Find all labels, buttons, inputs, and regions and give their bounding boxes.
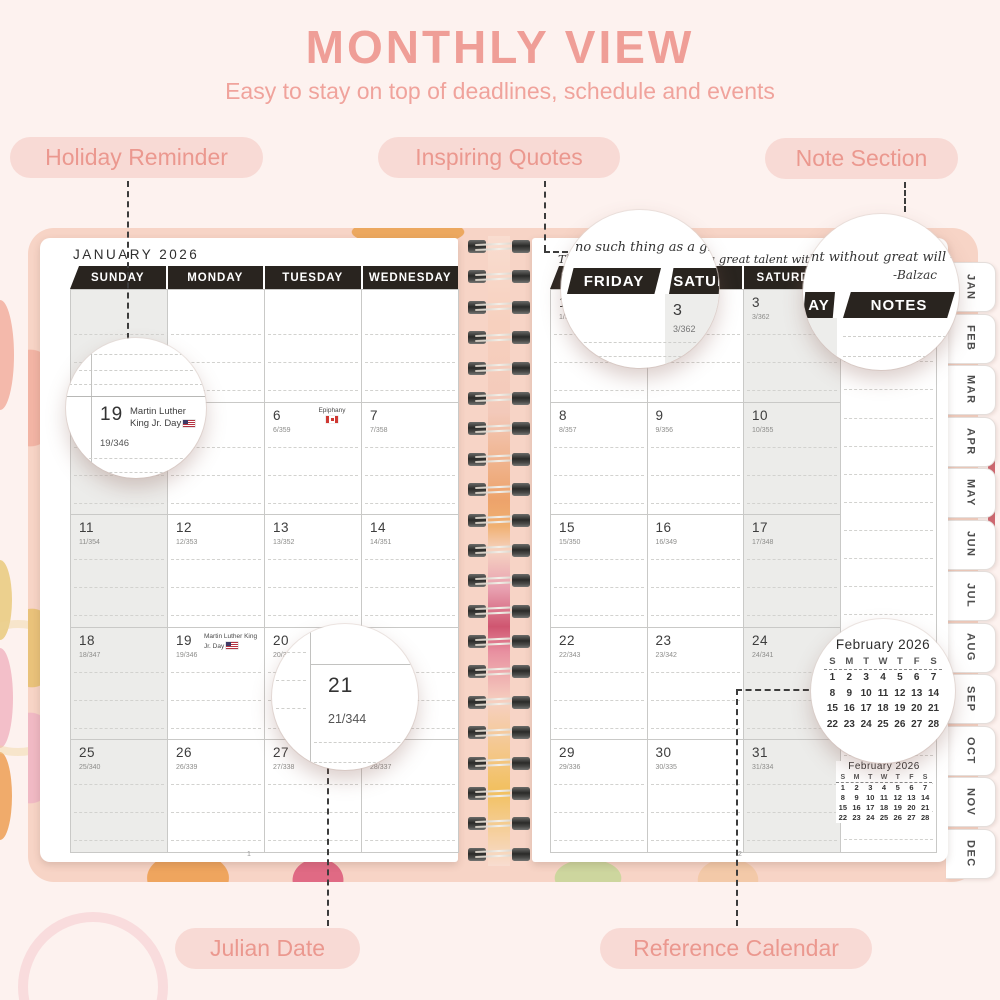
note-line bbox=[74, 700, 164, 701]
mini-date: 7 bbox=[925, 670, 942, 686]
mini-date: 2 bbox=[841, 670, 858, 686]
callout-holiday-reminder: Holiday Reminder bbox=[10, 137, 263, 178]
holiday-label-text: Martin Luther King Jr. Day bbox=[130, 406, 186, 429]
spiral-ring bbox=[468, 696, 530, 710]
note-line bbox=[268, 559, 358, 560]
note-line bbox=[651, 587, 741, 588]
page-title: MONTHLY VIEW bbox=[0, 20, 1000, 74]
magnified-julian-date: 21/344 bbox=[328, 712, 366, 726]
note-line bbox=[554, 784, 644, 785]
note-line bbox=[268, 503, 358, 504]
julian-date: 19/346 bbox=[176, 652, 197, 659]
mini-date: 2 bbox=[850, 783, 864, 793]
calendar-cell: 3030/335 bbox=[648, 739, 745, 852]
spiral-ring bbox=[468, 453, 530, 467]
note-line bbox=[268, 390, 358, 391]
spiral-ring bbox=[468, 605, 530, 619]
connector-line bbox=[544, 181, 546, 251]
note-line bbox=[564, 342, 716, 343]
us-flag-icon bbox=[183, 420, 195, 427]
connector-line bbox=[127, 181, 129, 339]
mini-date: 8 bbox=[836, 793, 850, 803]
month-tab-jul: JUL bbox=[946, 571, 996, 621]
month-tab-aug: AUG bbox=[946, 623, 996, 673]
note-line bbox=[554, 475, 644, 476]
spiral-ring bbox=[468, 301, 530, 315]
connector-line bbox=[904, 182, 906, 212]
day-header-chip: SATUR bbox=[669, 268, 719, 294]
mini-date: 22 bbox=[824, 717, 841, 733]
note-line bbox=[554, 672, 644, 673]
mini-date: 23 bbox=[841, 717, 858, 733]
note-line bbox=[843, 336, 956, 337]
spiral-ring bbox=[468, 757, 530, 771]
mini-date: 4 bbox=[877, 783, 891, 793]
calendar-cell bbox=[841, 514, 938, 627]
note-line bbox=[74, 812, 164, 813]
mini-day-letter: T bbox=[891, 774, 905, 781]
month-tab-label: FEB bbox=[965, 325, 977, 352]
product-infographic: MONTHLY VIEW Easy to stay on top of dead… bbox=[0, 0, 1000, 1000]
mini-calendar-week: 15161718192021 bbox=[836, 803, 932, 813]
julian-date: 17/348 bbox=[752, 539, 773, 546]
mini-day-letter: F bbox=[905, 774, 919, 781]
note-line bbox=[171, 728, 261, 729]
date-number: 13 bbox=[273, 520, 289, 535]
calendar-cell: 1818/347 bbox=[71, 627, 168, 740]
julian-date: 26/339 bbox=[176, 764, 197, 771]
mini-date: 7 bbox=[918, 783, 932, 793]
mini-date: 18 bbox=[877, 803, 891, 813]
mini-date: 17 bbox=[863, 803, 877, 813]
note-line bbox=[171, 812, 261, 813]
mini-day-letter: T bbox=[891, 656, 908, 667]
date-number: 16 bbox=[656, 520, 672, 535]
mini-calendar-week: 15161718192021 bbox=[824, 701, 942, 717]
month-tab-label: JAN bbox=[965, 274, 977, 301]
calendar-cell bbox=[362, 289, 459, 402]
mini-day-letter: T bbox=[863, 774, 877, 781]
note-line bbox=[365, 784, 455, 785]
mini-date: 23 bbox=[850, 813, 864, 823]
calendar-cell: 1616/349 bbox=[648, 514, 745, 627]
mini-date: 28 bbox=[918, 813, 932, 823]
page-number: 1 bbox=[40, 851, 458, 858]
page-subtitle: Easy to stay on top of deadlines, schedu… bbox=[0, 78, 1000, 105]
month-tab-jun: JUN bbox=[946, 520, 996, 570]
note-line bbox=[747, 503, 837, 504]
date-number: 27 bbox=[273, 745, 289, 760]
calendar-cell: 2929/336 bbox=[551, 739, 648, 852]
date-number: 3 bbox=[752, 295, 760, 310]
note-line bbox=[171, 587, 261, 588]
note-line bbox=[651, 812, 741, 813]
mini-date: 13 bbox=[905, 793, 919, 803]
julian-date: 11/354 bbox=[79, 539, 100, 546]
date-number: 17 bbox=[752, 520, 768, 535]
note-line bbox=[268, 587, 358, 588]
spiral-ring bbox=[468, 726, 530, 740]
mini-day-letter: W bbox=[877, 774, 891, 781]
spiral-ring bbox=[468, 331, 530, 345]
month-tab-may: MAY bbox=[946, 468, 996, 518]
month-tab-label: MAR bbox=[965, 375, 977, 405]
magnifier-inspiring-quote: no such thing as a great talent w FRIDAY… bbox=[561, 210, 719, 368]
note-line bbox=[651, 728, 741, 729]
note-line bbox=[651, 784, 741, 785]
mini-date: 10 bbox=[863, 793, 877, 803]
date-number: 20 bbox=[273, 633, 289, 648]
mini-day-letter: S bbox=[824, 656, 841, 667]
note-line bbox=[268, 615, 358, 616]
date-number: 7 bbox=[370, 408, 378, 423]
julian-date: 27/338 bbox=[273, 764, 294, 771]
mini-date: 25 bbox=[875, 717, 892, 733]
spiral-ring bbox=[468, 362, 530, 376]
mini-date: 22 bbox=[836, 813, 850, 823]
mini-calendar-week: 22232425262728 bbox=[824, 717, 942, 733]
spiral-ring bbox=[468, 392, 530, 406]
magnified-date: 19 bbox=[100, 404, 123, 426]
note-line bbox=[747, 390, 837, 391]
mini-date: 19 bbox=[891, 803, 905, 813]
note-line bbox=[747, 475, 837, 476]
cover-art-blob bbox=[0, 300, 14, 410]
julian-date: 23/342 bbox=[656, 652, 677, 659]
spiral-ring bbox=[468, 787, 530, 801]
date-number: 29 bbox=[559, 745, 575, 760]
grid-line bbox=[310, 664, 418, 665]
date-number: 30 bbox=[656, 745, 672, 760]
calendar-cell: 1414/351 bbox=[362, 514, 459, 627]
magnifier-julian-date: 21 21/344 bbox=[272, 624, 418, 770]
month-tab-dec: DEC bbox=[946, 829, 996, 879]
note-line bbox=[74, 503, 164, 504]
note-line bbox=[651, 447, 741, 448]
note-line bbox=[365, 587, 455, 588]
date-number: 19 bbox=[176, 633, 192, 648]
note-line bbox=[314, 742, 415, 743]
spiral-ring bbox=[468, 635, 530, 649]
month-tab-oct: OCT bbox=[946, 726, 996, 776]
date-number: 11 bbox=[79, 520, 94, 535]
note-line bbox=[747, 447, 837, 448]
mini-date: 9 bbox=[841, 686, 858, 702]
date-number: 26 bbox=[176, 745, 192, 760]
day-header: TUESDAY bbox=[265, 266, 361, 289]
mini-calendar-title: February 2026 bbox=[824, 637, 942, 652]
note-line bbox=[69, 458, 203, 459]
spiral-ring bbox=[468, 514, 530, 528]
shaded-column-patch bbox=[803, 318, 837, 370]
note-line bbox=[171, 615, 261, 616]
note-line bbox=[554, 503, 644, 504]
calendar-cell: 2525/340 bbox=[71, 739, 168, 852]
note-line bbox=[69, 354, 203, 355]
note-line bbox=[554, 812, 644, 813]
note-line bbox=[74, 672, 164, 673]
mini-date: 3 bbox=[858, 670, 875, 686]
date-number: 6 bbox=[273, 408, 281, 423]
note-line bbox=[74, 840, 164, 841]
notes-header-chip: NOTES bbox=[843, 292, 955, 318]
mini-date: 6 bbox=[905, 783, 919, 793]
mini-date: 15 bbox=[824, 701, 841, 717]
note-line bbox=[651, 475, 741, 476]
mini-date: 25 bbox=[877, 813, 891, 823]
mini-calendar-week: 891011121314 bbox=[824, 686, 942, 702]
note-line bbox=[171, 700, 261, 701]
julian-date: 13/352 bbox=[273, 539, 294, 546]
note-line bbox=[276, 680, 306, 681]
calendar-cell: 1717/348 bbox=[744, 514, 841, 627]
mini-date: 14 bbox=[925, 686, 942, 702]
julian-date: 15/350 bbox=[559, 539, 580, 546]
note-line bbox=[74, 728, 164, 729]
spiral-ring bbox=[468, 240, 530, 254]
calendar-cell bbox=[841, 402, 938, 515]
mini-day-letter: F bbox=[908, 656, 925, 667]
us-flag-icon bbox=[226, 642, 238, 649]
julian-date: 9/356 bbox=[656, 427, 674, 434]
mini-day-letter: M bbox=[850, 774, 864, 781]
note-line bbox=[747, 587, 837, 588]
mini-date: 18 bbox=[875, 701, 892, 717]
holiday-event: Martin Luther King Jr. Day bbox=[204, 633, 263, 652]
date-number: 9 bbox=[656, 408, 664, 423]
note-line bbox=[554, 390, 644, 391]
date-number: 15 bbox=[559, 520, 575, 535]
mini-day-letter: W bbox=[875, 656, 892, 667]
mini-date: 26 bbox=[891, 813, 905, 823]
callout-inspiring-quotes: Inspiring Quotes bbox=[378, 137, 620, 178]
calendar-cell: 66/359Epiphany bbox=[265, 402, 362, 515]
mini-calendar-week: 891011121314 bbox=[836, 793, 932, 803]
mini-date: 20 bbox=[905, 803, 919, 813]
julian-date: 29/336 bbox=[559, 764, 580, 771]
month-title: JANUARY 2026 bbox=[73, 247, 199, 262]
spiral-ring bbox=[468, 848, 530, 862]
calendar-cell: 1010/355 bbox=[744, 402, 841, 515]
note-line bbox=[747, 840, 837, 841]
note-line bbox=[844, 586, 934, 587]
note-line bbox=[171, 334, 261, 335]
mini-calendar-week: 1234567 bbox=[836, 783, 932, 793]
mini-date: 3 bbox=[863, 783, 877, 793]
date-number: 31 bbox=[752, 745, 768, 760]
date-number: 25 bbox=[79, 745, 95, 760]
note-line bbox=[843, 356, 956, 357]
magnified-quote-text: nt without great will - power." bbox=[811, 250, 959, 265]
note-line bbox=[171, 559, 261, 560]
note-line bbox=[651, 503, 741, 504]
note-line bbox=[69, 384, 203, 385]
note-line bbox=[365, 334, 455, 335]
note-line bbox=[554, 700, 644, 701]
note-line bbox=[651, 390, 741, 391]
note-line bbox=[268, 784, 358, 785]
date-number: 12 bbox=[176, 520, 192, 535]
note-line bbox=[314, 762, 415, 763]
note-line bbox=[844, 418, 934, 419]
grid-line bbox=[91, 338, 92, 478]
spiral-ring bbox=[468, 544, 530, 558]
date-number: 24 bbox=[752, 633, 768, 648]
note-line bbox=[747, 784, 837, 785]
julian-date: 16/349 bbox=[656, 539, 677, 546]
mini-date: 6 bbox=[908, 670, 925, 686]
date-number: 23 bbox=[656, 633, 672, 648]
mini-calendar-day-letters: SMTWTFS bbox=[836, 774, 932, 783]
note-line bbox=[651, 700, 741, 701]
mini-date: 27 bbox=[905, 813, 919, 823]
note-line bbox=[74, 334, 164, 335]
mini-date: 21 bbox=[925, 701, 942, 717]
mini-date: 8 bbox=[824, 686, 841, 702]
holiday-event: Epiphany bbox=[309, 407, 355, 424]
left-page: JANUARY 2026 SUNDAYMONDAYTUESDAYWEDNESDA… bbox=[40, 238, 458, 862]
note-line bbox=[276, 708, 306, 709]
mini-date: 1 bbox=[824, 670, 841, 686]
note-line bbox=[268, 362, 358, 363]
note-line bbox=[554, 587, 644, 588]
mini-day-letter: T bbox=[858, 656, 875, 667]
calendar-cell: 1212/353 bbox=[168, 514, 265, 627]
note-line bbox=[69, 472, 203, 473]
calendar-cell: 1313/352 bbox=[265, 514, 362, 627]
reference-mini-calendar: February 2026SMTWTFS12345678910111213141… bbox=[836, 761, 932, 823]
date-number: 18 bbox=[79, 633, 95, 648]
note-line bbox=[171, 840, 261, 841]
month-tab-label: JUN bbox=[965, 531, 977, 558]
note-line bbox=[554, 615, 644, 616]
note-line bbox=[844, 558, 934, 559]
mini-day-letter: S bbox=[925, 656, 942, 667]
julian-date: 8/357 bbox=[559, 427, 577, 434]
connector-line bbox=[544, 251, 568, 253]
mini-date: 16 bbox=[841, 701, 858, 717]
mini-date: 15 bbox=[836, 803, 850, 813]
julian-date: 22/343 bbox=[559, 652, 580, 659]
note-line bbox=[747, 812, 837, 813]
mini-day-letter: M bbox=[841, 656, 858, 667]
julian-date: 3/362 bbox=[752, 314, 770, 321]
note-line bbox=[74, 784, 164, 785]
julian-date: 10/355 bbox=[752, 427, 773, 434]
spiral-binding bbox=[468, 240, 530, 862]
month-tab-apr: APR bbox=[946, 417, 996, 467]
note-line bbox=[365, 390, 455, 391]
note-line bbox=[651, 615, 741, 616]
note-line bbox=[844, 446, 934, 447]
magnified-julian-date: 3/362 bbox=[673, 324, 696, 334]
callout-julian-date: Julian Date bbox=[175, 928, 360, 969]
magnified-julian-date: 19/346 bbox=[100, 438, 129, 449]
page-number: 2 bbox=[532, 851, 948, 858]
mini-date: 4 bbox=[875, 670, 892, 686]
julian-date: 14/351 bbox=[370, 539, 391, 546]
grid-line bbox=[310, 624, 311, 770]
note-line bbox=[74, 615, 164, 616]
spiral-ring bbox=[468, 270, 530, 284]
month-tab-label: NOV bbox=[965, 788, 977, 816]
mini-date: 19 bbox=[891, 701, 908, 717]
mini-date: 28 bbox=[925, 717, 942, 733]
note-line bbox=[74, 587, 164, 588]
magnifier-note-section: nt without great will - power." -Balzac … bbox=[803, 214, 959, 370]
note-line bbox=[276, 652, 306, 653]
magnified-quote-text: no such thing as a great talent w bbox=[575, 240, 717, 255]
note-line bbox=[268, 334, 358, 335]
julian-date: 30/335 bbox=[656, 764, 677, 771]
month-tab-nov: NOV bbox=[946, 777, 996, 827]
mini-date: 21 bbox=[918, 803, 932, 813]
mini-date: 12 bbox=[891, 686, 908, 702]
note-line bbox=[564, 356, 716, 357]
note-line bbox=[268, 475, 358, 476]
mini-calendar-week: 1234567 bbox=[824, 670, 942, 686]
note-line bbox=[554, 728, 644, 729]
note-line bbox=[365, 559, 455, 560]
mini-date: 10 bbox=[858, 686, 875, 702]
spiral-ring bbox=[468, 817, 530, 831]
magnified-day-headers: FRIDAY SATUR bbox=[567, 268, 719, 294]
calendar-cell: 88/357 bbox=[551, 402, 648, 515]
calendar-cell: 3131/334 bbox=[744, 739, 841, 852]
note-line bbox=[844, 389, 934, 390]
mini-date: 16 bbox=[850, 803, 864, 813]
note-line bbox=[844, 502, 934, 503]
magnified-date: 21 bbox=[328, 674, 353, 698]
note-line bbox=[651, 672, 741, 673]
month-tab-label: SEP bbox=[965, 686, 977, 713]
day-header-chip: FRIDAY bbox=[567, 268, 661, 294]
magnified-day-headers: AY NOTES bbox=[803, 292, 955, 318]
calendar-cell: 1515/350 bbox=[551, 514, 648, 627]
note-line bbox=[651, 559, 741, 560]
month-tab-label: MAY bbox=[965, 479, 977, 507]
note-line bbox=[268, 812, 358, 813]
magnifier-reference-calendar: February 2026SMTWTFS12345678910111213141… bbox=[811, 619, 955, 763]
grid-line bbox=[66, 396, 206, 397]
mini-day-letter: S bbox=[918, 774, 932, 781]
magnified-quote-attribution: -Balzac bbox=[893, 268, 937, 282]
julian-date: 24/341 bbox=[752, 652, 773, 659]
magnifier-holiday-reminder: 19 Martin Luther King Jr. Day 19/346 bbox=[66, 338, 206, 478]
day-header: SUNDAY bbox=[70, 266, 166, 289]
calendar-cell: 1111/354 bbox=[71, 514, 168, 627]
mini-date: 26 bbox=[891, 717, 908, 733]
note-line bbox=[268, 840, 358, 841]
mini-date: 1 bbox=[836, 783, 850, 793]
ca-flag-icon bbox=[326, 416, 338, 423]
note-line bbox=[171, 475, 261, 476]
julian-date: 28/337 bbox=[370, 764, 391, 771]
mini-date: 24 bbox=[858, 717, 875, 733]
month-tab-mar: MAR bbox=[946, 365, 996, 415]
magnified-mini-calendar: February 2026SMTWTFS12345678910111213141… bbox=[824, 637, 942, 732]
note-line bbox=[651, 840, 741, 841]
date-number: 8 bbox=[559, 408, 567, 423]
connector-line bbox=[736, 689, 738, 926]
mini-date: 17 bbox=[858, 701, 875, 717]
callout-note-section: Note Section bbox=[765, 138, 958, 179]
note-line bbox=[554, 447, 644, 448]
holiday-label: Martin Luther King Jr. Day bbox=[130, 406, 202, 431]
note-line bbox=[268, 447, 358, 448]
month-tab-label: JUL bbox=[965, 583, 977, 608]
calendar-cell: 77/358 bbox=[362, 402, 459, 515]
